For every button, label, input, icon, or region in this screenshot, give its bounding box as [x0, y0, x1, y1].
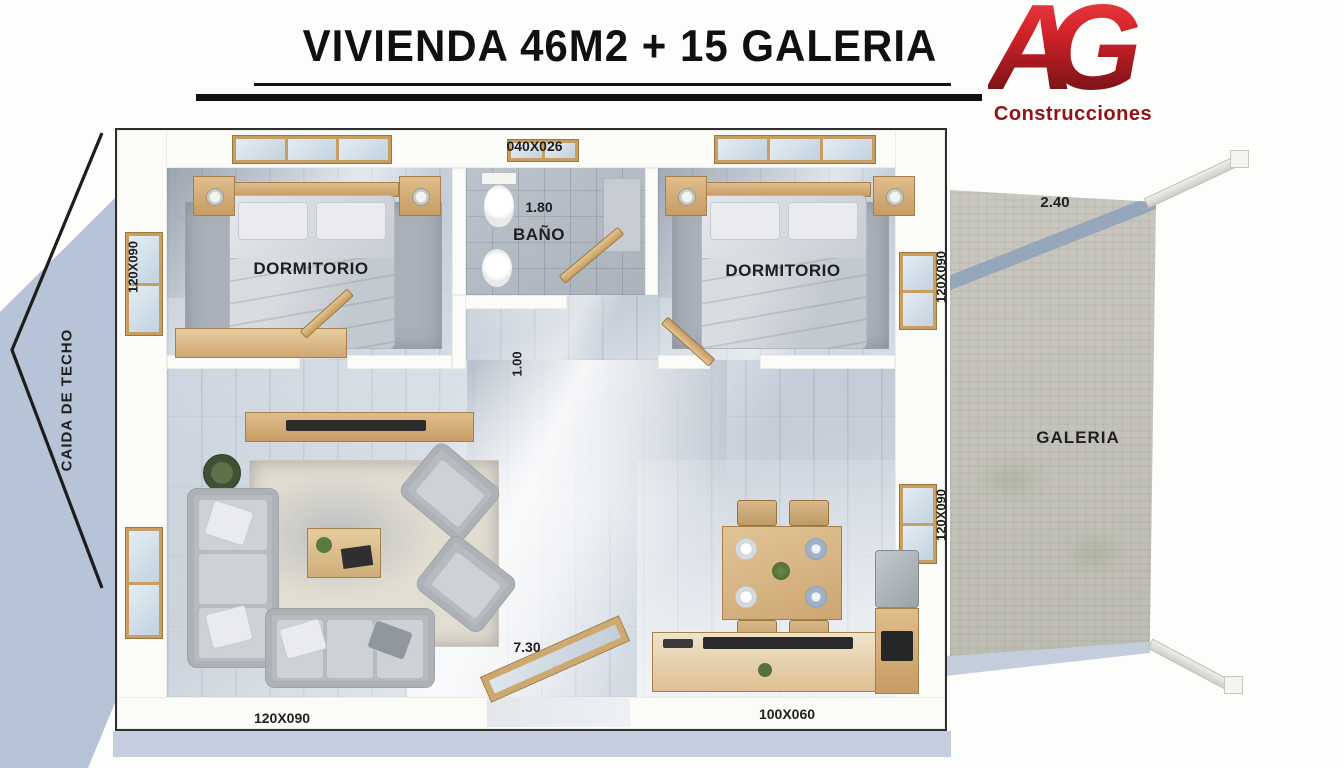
plate-icon: [735, 538, 757, 560]
page-title: VIVIENDA 46M2 + 15 GALERIA: [205, 21, 1035, 72]
kitchen-counter: [652, 632, 897, 692]
window-bedroom-left-top: [232, 135, 392, 164]
dining-chair: [789, 500, 829, 526]
sink-icon: [663, 639, 693, 648]
nightstand: [399, 176, 441, 216]
window-living-side: [125, 527, 163, 639]
pillow: [710, 202, 780, 240]
company-logo-monogram: AG: [988, 0, 1198, 116]
house-bottom-shadow: [113, 731, 951, 757]
house-plan: DORMITORIO DORMITORIO 1.80 BAÑO: [115, 128, 947, 731]
wall-hall-left: [452, 295, 466, 369]
room-label-bedroom-left: DORMITORIO: [229, 260, 393, 277]
dim-top-window: 040X026: [477, 139, 592, 153]
dining-chair: [737, 500, 777, 526]
wall-bedL-bottom-b: [347, 355, 452, 369]
entry-floor-gap: [487, 697, 630, 727]
dim-galeria-depth: 2.40: [1020, 195, 1090, 210]
nightstand: [873, 176, 915, 216]
plate-icon: [735, 586, 757, 608]
sofa-front: [265, 608, 435, 688]
dim-bottom-left-window: 120X090: [227, 711, 337, 725]
company-logo-subtitle: Construcciones: [983, 103, 1163, 126]
lamp-icon: [678, 188, 696, 206]
tray-icon: [341, 545, 373, 569]
lamp-icon: [412, 188, 430, 206]
room-label-galeria: GALERIA: [1018, 429, 1138, 446]
tv-stand: [245, 412, 474, 442]
galeria-post-top: [1230, 150, 1249, 168]
room-label-bedroom-right: DORMITORIO: [701, 262, 865, 279]
coffee-table: [307, 528, 381, 578]
galeria-post-bottom: [1224, 676, 1243, 694]
roof-shadow-polygon: [0, 196, 117, 768]
dim-bathroom-width: 1.80: [509, 200, 569, 214]
pillow: [238, 202, 308, 240]
room-label-bathroom: BAÑO: [499, 226, 579, 243]
oven-icon: [881, 631, 913, 661]
dim-interior-width: 7.30: [497, 640, 557, 654]
title-underline-thin: [254, 83, 951, 86]
sofa-cushion: [198, 553, 268, 605]
floor-plan-page: DORMITORIO DORMITORIO 1.80 BAÑO: [0, 0, 1344, 768]
wall-bath-bottom: [452, 295, 567, 309]
window-bedroom-right-top: [714, 135, 876, 164]
lamp-icon: [886, 188, 904, 206]
title-underline-thick: [196, 94, 982, 101]
pillow: [316, 202, 386, 240]
wall-bedR-bottom-b: [760, 355, 895, 369]
tv-icon: [286, 420, 426, 431]
counter-plant-icon: [758, 663, 772, 677]
dim-left-window: 120X090: [127, 241, 140, 293]
cooktop-icon: [703, 637, 853, 649]
plant-icon: [203, 454, 241, 492]
plant-icon: [316, 537, 332, 553]
nightstand: [665, 176, 707, 216]
dresser-bedroom-left: [175, 328, 347, 358]
wall-bath-bedR: [645, 168, 658, 295]
bidet-icon: [481, 248, 513, 288]
wall-bedL-bath: [452, 168, 466, 295]
plate-icon: [805, 586, 827, 608]
oven-tower: [875, 608, 919, 694]
fridge-icon: [875, 550, 919, 608]
galeria-slab: [950, 190, 1156, 656]
dim-bottom-right-window: 100X060: [732, 707, 842, 721]
sofa-cushion: [326, 619, 374, 679]
pillow: [788, 202, 858, 240]
dim-hallway-width: 1.00: [511, 351, 524, 376]
window-bedroom-right-side: [899, 252, 937, 330]
dim-right-window-top: 120X090: [935, 251, 948, 303]
nightstand: [193, 176, 235, 216]
wall-left: [117, 130, 167, 729]
lamp-icon: [206, 188, 224, 206]
plate-icon: [805, 538, 827, 560]
roof-slope-label: CAIDA DE TECHO: [60, 329, 75, 472]
dim-right-window-bottom: 120X090: [935, 489, 948, 541]
centerpiece-plant-icon: [772, 562, 790, 580]
